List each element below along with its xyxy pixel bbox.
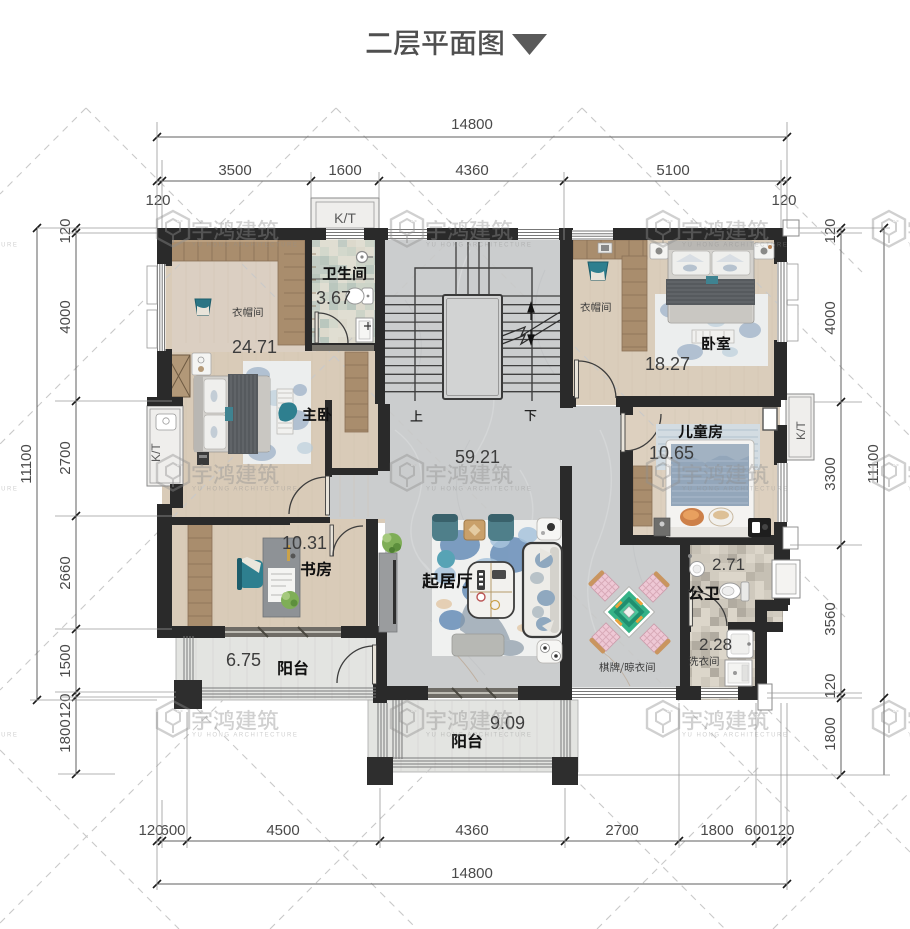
svg-text:2700: 2700	[57, 441, 74, 474]
svg-text:18.27: 18.27	[645, 354, 690, 374]
svg-text:120: 120	[769, 822, 794, 839]
svg-text:6.75: 6.75	[226, 650, 261, 670]
svg-text:2660: 2660	[57, 556, 74, 589]
svg-text:4500: 4500	[266, 822, 299, 839]
svg-text:3300: 3300	[822, 457, 839, 490]
svg-text:5100: 5100	[656, 162, 689, 179]
svg-text:2700: 2700	[605, 822, 638, 839]
svg-text:4360: 4360	[455, 162, 488, 179]
svg-text:2.71: 2.71	[712, 555, 745, 574]
svg-text:1600: 1600	[328, 162, 361, 179]
svg-text:3500: 3500	[218, 162, 251, 179]
svg-text:1500: 1500	[57, 644, 74, 677]
svg-text:14800: 14800	[451, 116, 493, 133]
svg-text:1800: 1800	[700, 822, 733, 839]
svg-text:120: 120	[822, 218, 839, 243]
svg-text:14800: 14800	[451, 865, 493, 882]
svg-text:4360: 4360	[455, 822, 488, 839]
svg-text:3.67: 3.67	[316, 288, 351, 308]
svg-text:600: 600	[160, 822, 185, 839]
svg-text:4000: 4000	[57, 300, 74, 333]
svg-text:2.28: 2.28	[699, 635, 732, 654]
svg-text:120: 120	[57, 218, 74, 243]
svg-text:10.31: 10.31	[282, 533, 327, 553]
svg-text:1800: 1800	[822, 717, 839, 750]
svg-text:1800: 1800	[57, 719, 74, 752]
svg-text:120: 120	[771, 192, 796, 209]
svg-text:24.71: 24.71	[232, 337, 277, 357]
svg-text:600: 600	[744, 822, 769, 839]
svg-text:120: 120	[822, 673, 839, 698]
svg-text:11100: 11100	[18, 444, 35, 484]
svg-text:4000: 4000	[822, 301, 839, 334]
svg-text:K/T: K/T	[794, 421, 808, 440]
svg-text:3560: 3560	[822, 602, 839, 635]
svg-text:K/T: K/T	[149, 443, 163, 462]
svg-text:K/T: K/T	[334, 210, 356, 226]
svg-text:120: 120	[145, 192, 170, 209]
